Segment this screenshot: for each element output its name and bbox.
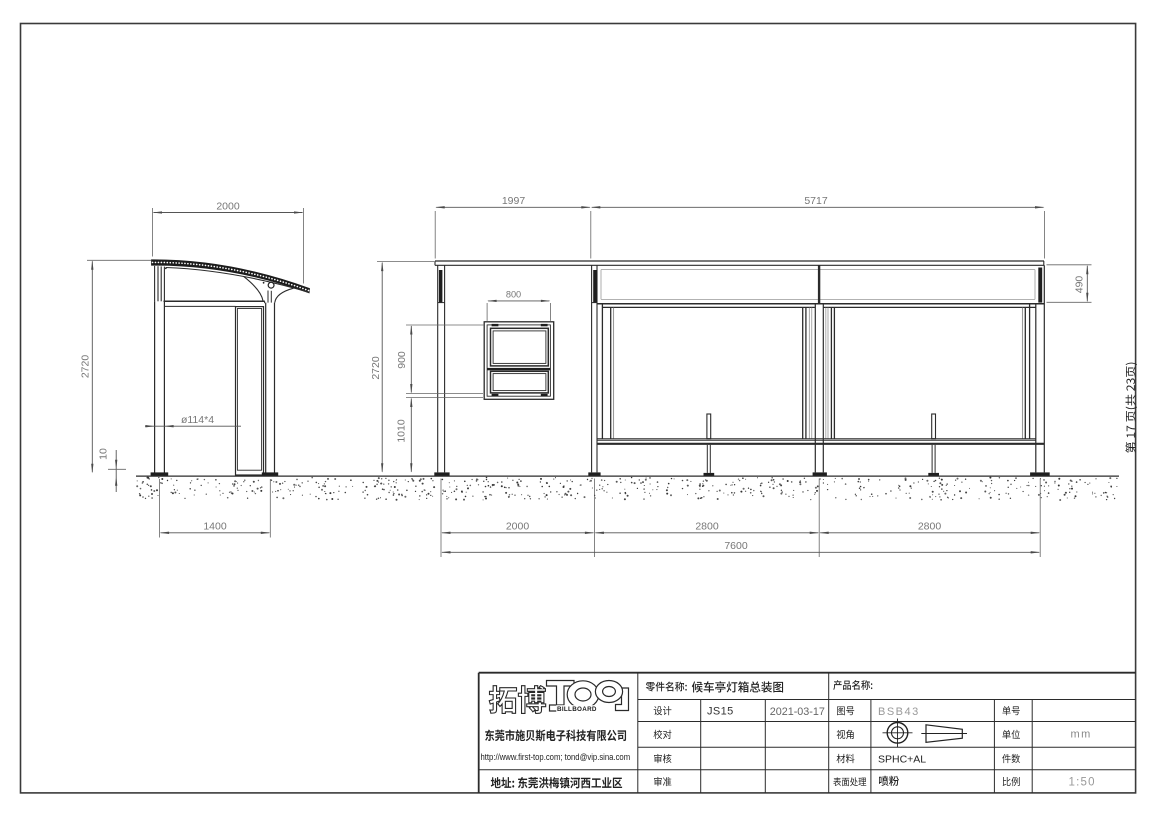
svg-text:BSB43: BSB43	[878, 706, 920, 718]
svg-text:http://www.first-top.com; tond: http://www.first-top.com; tond@vip.sina.…	[481, 752, 631, 762]
svg-text:1010: 1010	[396, 419, 408, 443]
svg-text:490: 490	[1073, 276, 1085, 294]
svg-text:2720: 2720	[79, 355, 91, 379]
svg-text:5717: 5717	[804, 195, 828, 207]
svg-text:ø114*4: ø114*4	[181, 414, 214, 426]
svg-text:BILLBOARD: BILLBOARD	[557, 706, 597, 713]
svg-text:800: 800	[506, 290, 521, 300]
svg-text:7600: 7600	[724, 540, 748, 552]
svg-text:2021-03-17: 2021-03-17	[770, 706, 825, 718]
svg-text:2800: 2800	[695, 521, 719, 533]
svg-text:2000: 2000	[506, 521, 530, 533]
svg-text:1400: 1400	[203, 521, 227, 533]
svg-text:1:50: 1:50	[1069, 777, 1096, 789]
svg-text:JS15: JS15	[707, 706, 734, 718]
svg-text:2720: 2720	[370, 356, 382, 380]
svg-text:2000: 2000	[216, 200, 240, 212]
svg-text:2800: 2800	[918, 521, 942, 533]
svg-text:SPHC+AL: SPHC+AL	[878, 753, 926, 765]
svg-text:mm: mm	[1071, 729, 1092, 741]
svg-text:900: 900	[396, 351, 408, 369]
svg-text:1997: 1997	[502, 195, 526, 207]
svg-text:10: 10	[98, 448, 110, 460]
